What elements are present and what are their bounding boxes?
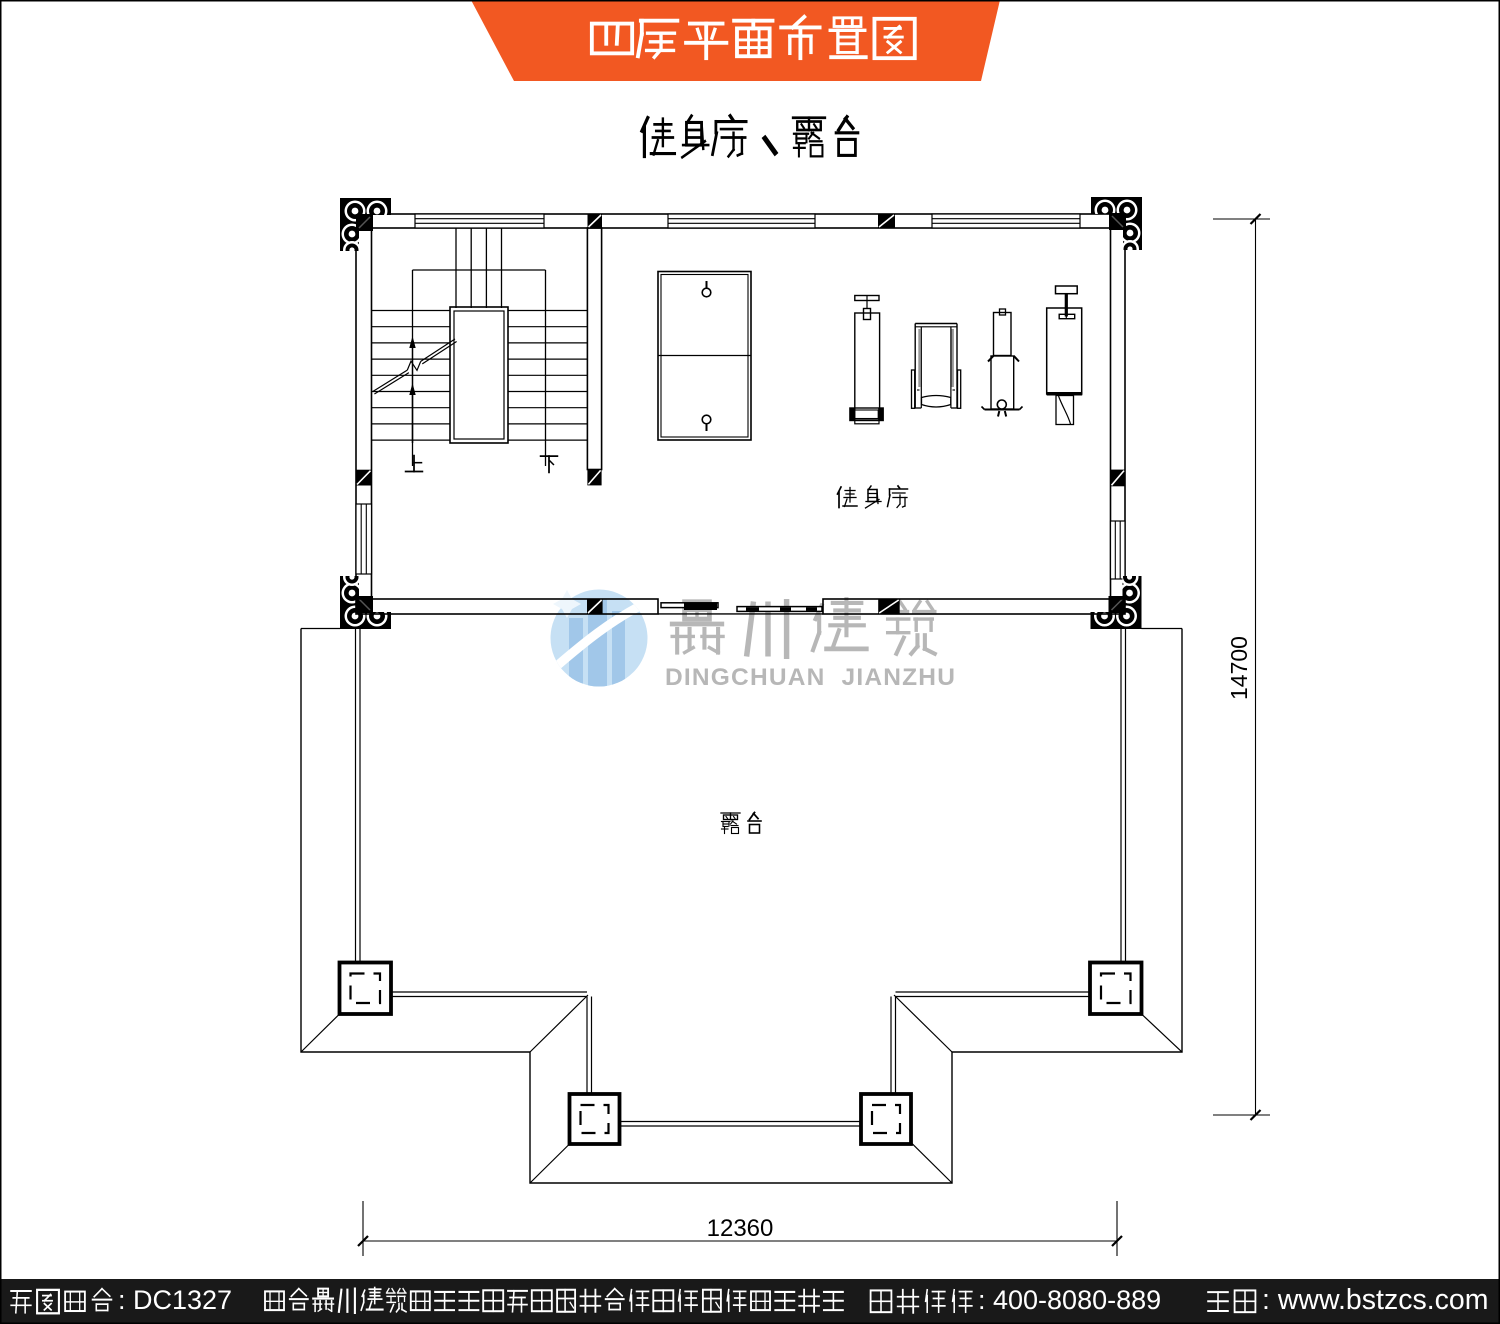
svg-text:14700: 14700 [1226, 636, 1252, 700]
svg-text:: DC1327: : DC1327 [118, 1285, 232, 1315]
svg-text:: 400-8080-889: : 400-8080-889 [978, 1285, 1161, 1315]
svg-text:: www.bstzcs.com: : www.bstzcs.com [1262, 1284, 1488, 1316]
svg-text:12360: 12360 [707, 1215, 774, 1242]
svg-text:DINGCHUAN JIANZHU: DINGCHUAN JIANZHU [665, 664, 956, 691]
